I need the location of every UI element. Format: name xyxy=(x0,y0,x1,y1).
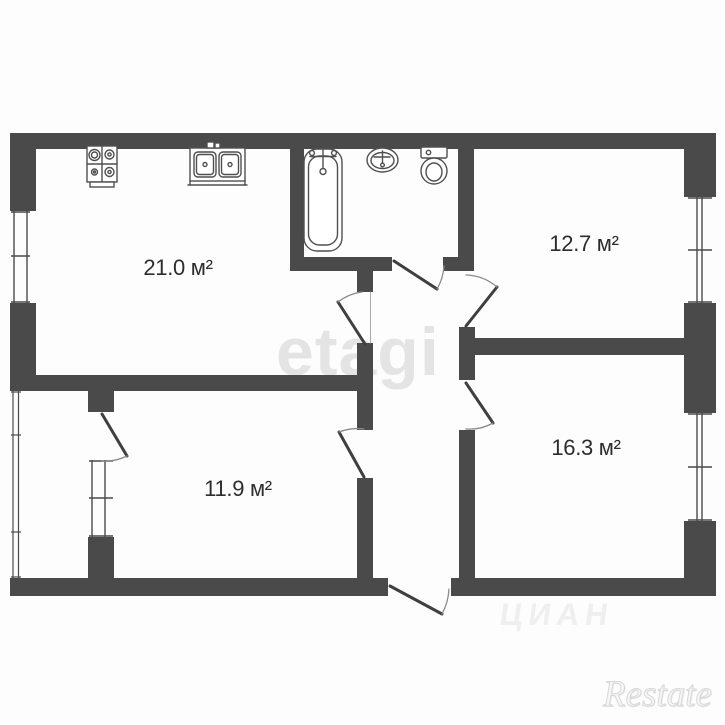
wall-segment xyxy=(458,149,474,271)
room-area-label-bottom-right: 16.3 м² xyxy=(551,435,620,461)
wall-segment xyxy=(684,521,716,596)
window-balcony-room xyxy=(89,460,113,537)
floor-plan-canvas: etagi xyxy=(0,0,725,725)
washbasin-icon xyxy=(367,148,398,172)
door-room-bottom-left xyxy=(339,429,364,477)
fixtures xyxy=(87,142,447,251)
window-balcony-glazing xyxy=(11,391,21,578)
stove-icon xyxy=(87,146,117,187)
bathtub-icon xyxy=(304,149,342,251)
wall-segment xyxy=(357,478,373,578)
wall-segment xyxy=(290,149,304,271)
watermark-restate: Restate xyxy=(603,675,712,716)
wall-segment xyxy=(459,327,475,380)
door-bathroom xyxy=(394,261,444,289)
floor-plan-drawing xyxy=(0,0,725,725)
wall-segment xyxy=(684,303,716,413)
watermark-cian: ЦИАН xyxy=(497,597,616,633)
room-area-label-top-right: 12.7 м² xyxy=(549,231,618,257)
wall-segment xyxy=(10,578,388,596)
door-kitchen xyxy=(338,292,371,344)
door-entrance xyxy=(390,586,449,614)
toilet-icon xyxy=(421,147,447,184)
kitchen-sink-icon xyxy=(188,142,247,185)
wall-segment xyxy=(451,578,716,596)
window-room-bottom-right xyxy=(688,413,712,521)
door-room-top-right xyxy=(466,275,497,326)
wall-segment xyxy=(459,430,475,578)
door-room-bottom-right xyxy=(466,383,493,429)
walls xyxy=(10,133,716,596)
window-kitchen-left xyxy=(11,211,30,303)
doors xyxy=(102,261,497,614)
wall-segment xyxy=(88,537,114,578)
room-area-label-kitchen-living: 21.0 м² xyxy=(143,255,212,281)
window-room-top-right xyxy=(688,197,712,303)
door-balcony xyxy=(102,414,127,461)
wall-segment xyxy=(684,133,716,197)
wall-segment xyxy=(88,391,114,412)
wall-segment xyxy=(10,133,36,211)
wall-segment xyxy=(290,257,392,271)
wall-segment xyxy=(10,375,373,391)
room-area-label-bottom-left: 11.9 м² xyxy=(204,476,272,502)
wall-segment xyxy=(357,271,373,292)
wall-segment xyxy=(474,338,684,355)
